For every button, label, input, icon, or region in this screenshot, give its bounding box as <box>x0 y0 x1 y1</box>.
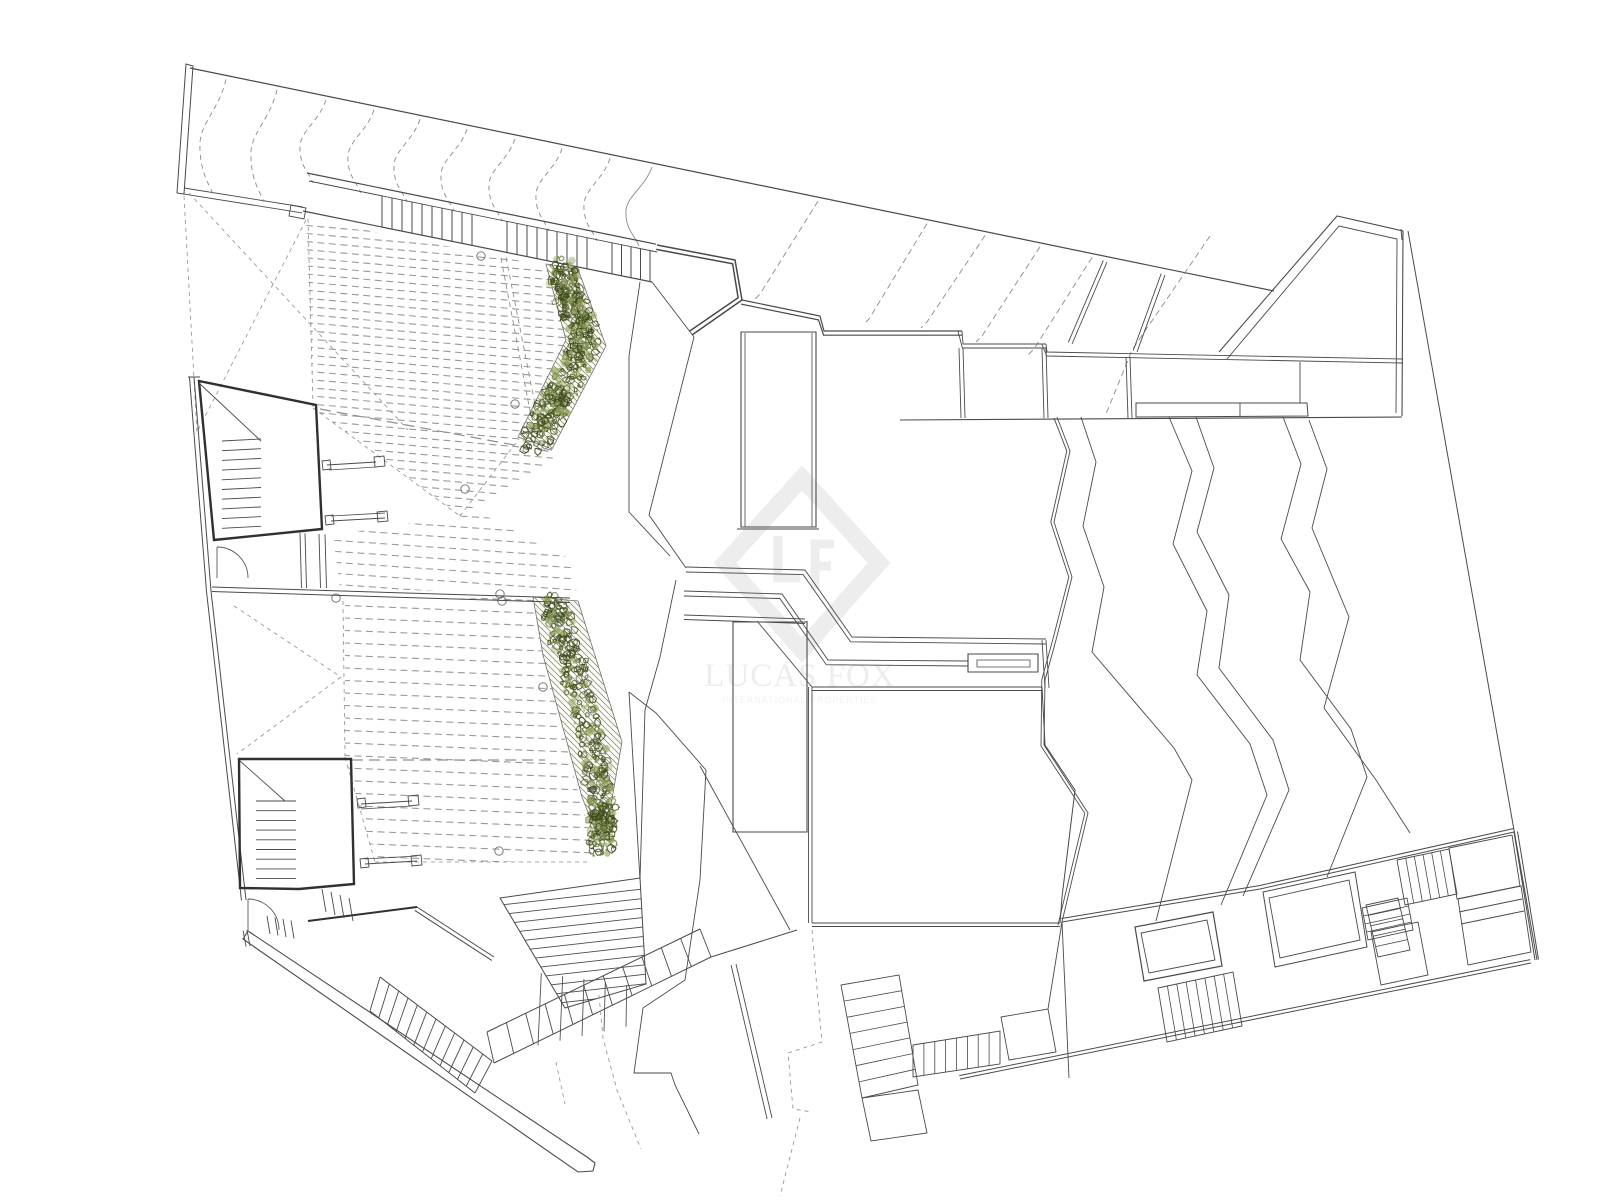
svg-text:INTERNATIONAL PROPERTIES: INTERNATIONAL PROPERTIES <box>722 695 877 705</box>
